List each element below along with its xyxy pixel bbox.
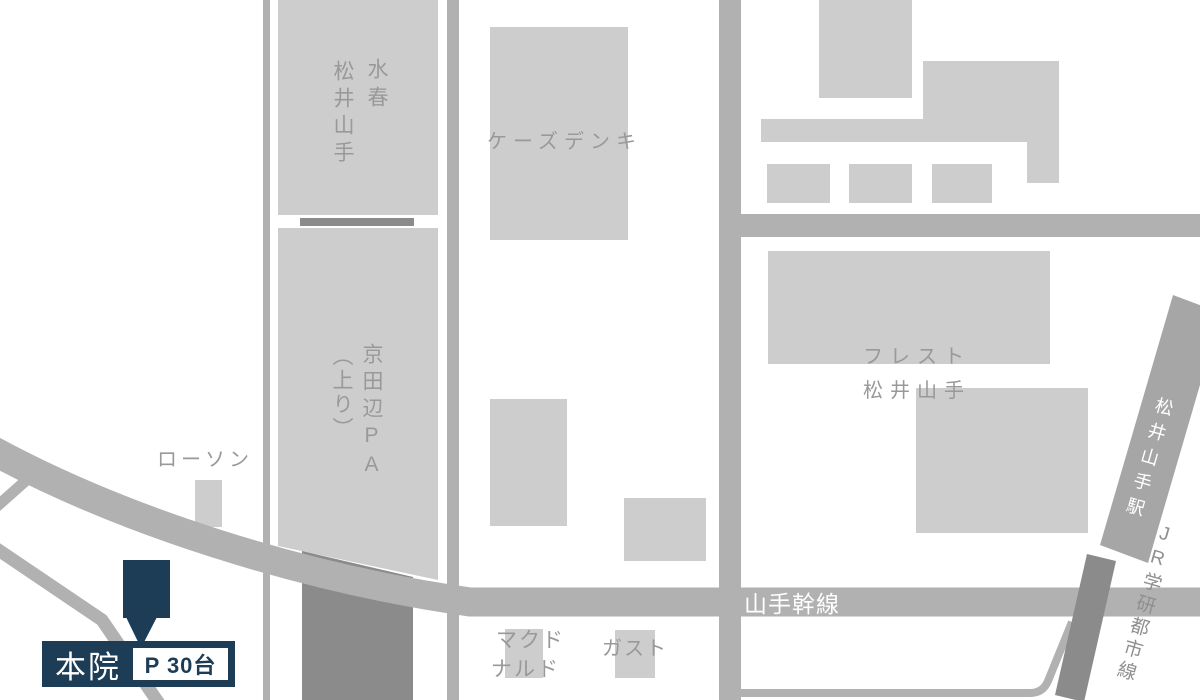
label-suisyun-col1: 水春 [366, 58, 387, 114]
parking-capacity-badge: P 30台 [133, 648, 228, 680]
road-fork-stub [0, 477, 30, 509]
building-northeast-2-wing [1027, 61, 1059, 183]
building-northeast-1 [819, 0, 912, 98]
map-graphics [0, 0, 1200, 700]
label-suisyun-col2: 松井山手 [332, 60, 353, 168]
label-mcdonalds-line1: マクド [496, 630, 565, 651]
label-yamate-trunk-road: 山手幹線 [744, 593, 840, 616]
building-northeast-2-bar [761, 119, 1027, 142]
road-thin-vertical-west [263, 0, 270, 700]
expressway-divider-band [300, 218, 414, 226]
label-frest-line1: フレスト [817, 347, 1017, 367]
main-clinic-name: 本院 [55, 642, 121, 687]
building-above-gusto [624, 498, 706, 561]
label-mcdonalds-line2: ナルド [491, 659, 560, 680]
building-small-1 [767, 164, 830, 203]
main-clinic-label: 本院 P 30台 [42, 641, 235, 687]
label-ks-denki: ケーズデンキ [487, 132, 642, 152]
main-clinic-marker [123, 560, 170, 618]
building-suisyun [278, 0, 438, 215]
building-lawson [195, 480, 222, 527]
label-kyotanabe-pa-col1: 京田辺PA [361, 343, 382, 482]
building-center-south [490, 399, 567, 526]
building-frest-south [916, 388, 1088, 533]
label-lawson: ローソン [157, 450, 253, 470]
building-kyotanabe-pa [278, 228, 438, 580]
jr-railway-line [1055, 554, 1116, 700]
label-frest-line2: 松井山手 [817, 381, 1017, 401]
building-small-3 [932, 164, 992, 203]
road-horizontal-north [741, 214, 1200, 237]
label-gusto: ガスト [602, 639, 668, 659]
access-map: 水春 松井山手 ケーズデンキ 京田辺PA （上り） ローソン フレスト 松井山手… [0, 0, 1200, 700]
road-minor-south [741, 622, 1072, 693]
label-kyotanabe-pa-col2: （上り） [331, 345, 352, 441]
building-small-2 [849, 164, 912, 203]
